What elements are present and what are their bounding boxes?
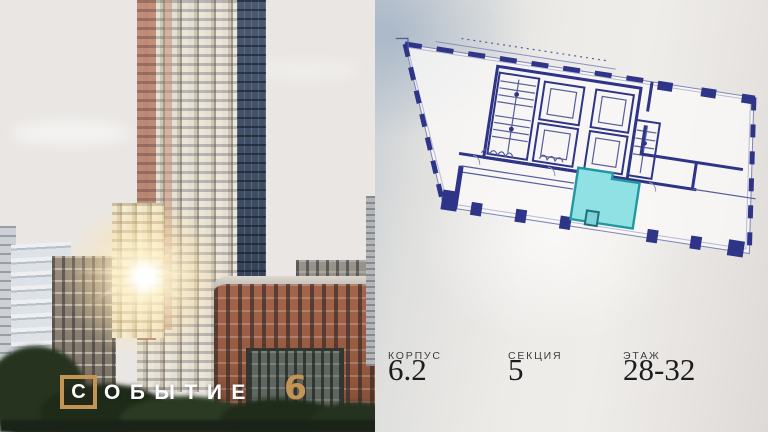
selected-unit-bath-tab: [585, 210, 599, 226]
logo-boxed-letter: С: [71, 382, 85, 402]
unit-details: КОРПУС 6.2 СЕКЦИЯ 5 ЭТАЖ 28-32: [375, 350, 768, 420]
sun-flare: [60, 192, 230, 362]
wall-pier: [514, 209, 527, 224]
detail-value: 5: [508, 354, 524, 385]
wall-pier: [689, 236, 702, 251]
slim-tower-core: [366, 196, 375, 366]
logo-number: 6: [284, 371, 307, 404]
logo-letter-frame: С: [60, 375, 97, 409]
wall-pier: [727, 239, 745, 257]
wall-pier: [646, 229, 659, 244]
logo-wordmark: ОБЫТИЕ: [104, 382, 255, 403]
detail-value: 6.2: [388, 354, 427, 385]
ground-shadow: [0, 420, 377, 432]
wall-pier: [470, 202, 483, 217]
real-estate-promo: С ОБЫТИЕ 6: [0, 0, 768, 432]
detail-value: 28-32: [623, 354, 695, 385]
cloud: [250, 60, 360, 80]
cloud: [10, 120, 130, 146]
building-photo: С ОБЫТИЕ 6: [0, 0, 377, 432]
